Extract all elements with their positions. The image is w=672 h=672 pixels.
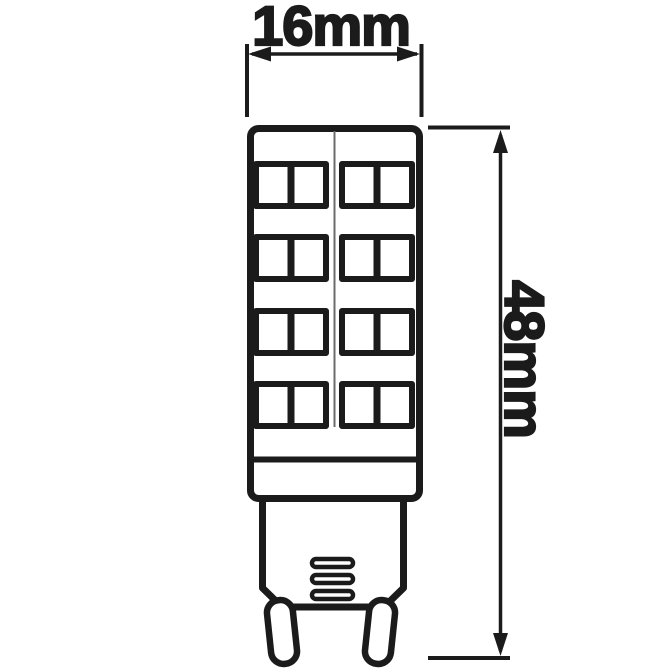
pin-right (364, 599, 397, 665)
vent-slot (312, 559, 353, 567)
height-arrowhead-bottom (493, 633, 508, 656)
bulb-dimension-diagram: 16mm 48mm (0, 0, 672, 672)
height-dimension-label: 48mm (493, 280, 556, 438)
vent-slot (312, 575, 353, 583)
pin-left (266, 599, 299, 665)
height-arrowhead-top (493, 130, 508, 153)
diagram-canvas: 16mm 48mm (0, 0, 672, 672)
vent-slot (312, 591, 353, 599)
width-dimension-label: 16mm (252, 0, 410, 57)
